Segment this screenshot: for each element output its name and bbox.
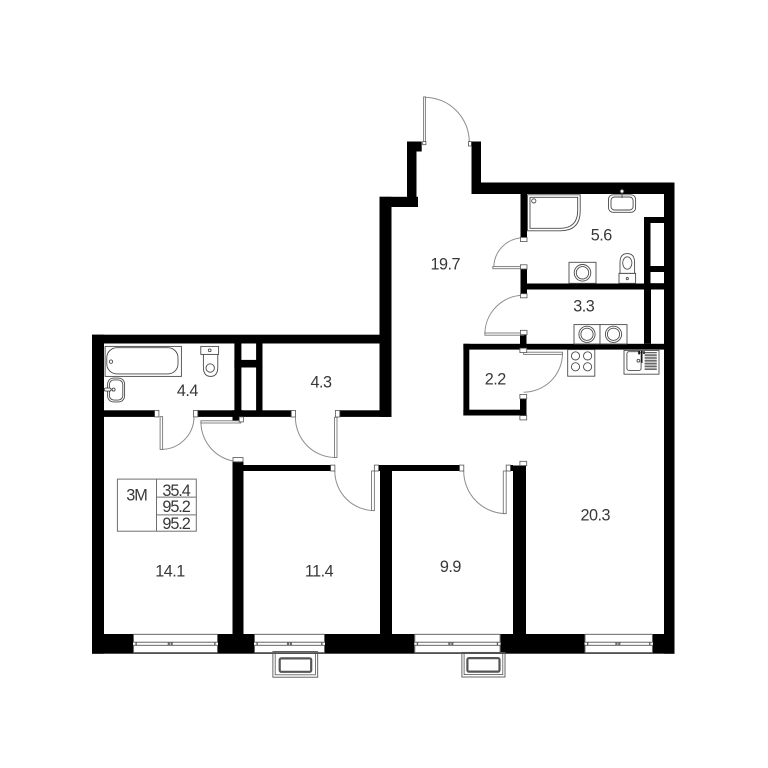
svg-text:9.9: 9.9 <box>440 558 462 576</box>
svg-text:14.1: 14.1 <box>155 562 185 580</box>
svg-text:5.6: 5.6 <box>591 226 613 244</box>
svg-text:3.3: 3.3 <box>573 298 595 316</box>
svg-text:95.2: 95.2 <box>162 498 190 516</box>
svg-text:3М: 3М <box>126 487 147 505</box>
svg-text:19.7: 19.7 <box>431 256 461 274</box>
svg-text:11.4: 11.4 <box>305 562 334 580</box>
svg-text:20.3: 20.3 <box>581 507 611 525</box>
svg-text:2.2: 2.2 <box>485 371 507 389</box>
svg-text:4.3: 4.3 <box>310 373 332 391</box>
svg-text:95.2: 95.2 <box>162 515 190 533</box>
svg-text:4.4: 4.4 <box>177 382 199 400</box>
